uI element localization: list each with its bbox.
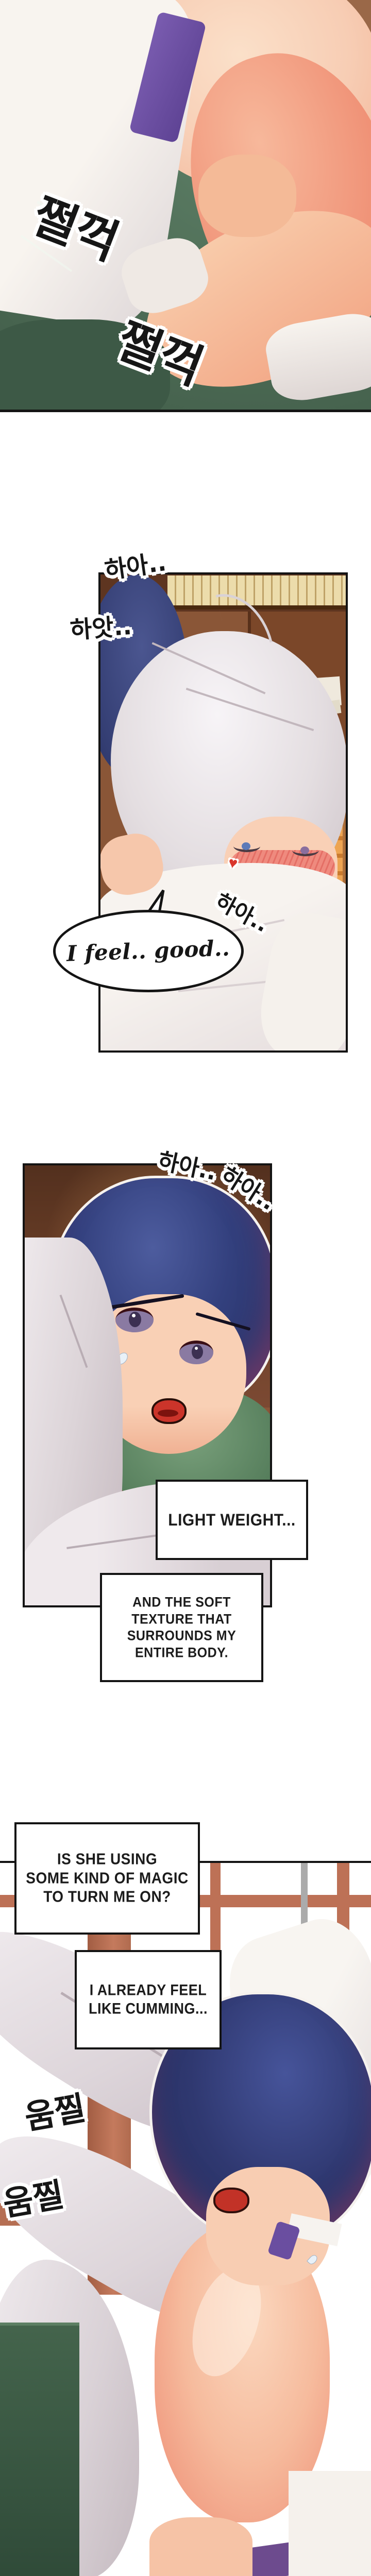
sfx-twitch-1: 움찔 (22, 2092, 88, 2134)
eye-glint (195, 1347, 198, 1350)
caption-magic: IS SHE USING SOME KIND OF MAGIC TO TURN … (14, 1822, 200, 1935)
hand-shape (198, 155, 296, 237)
bubble-feel-text: I feel.. good.. (66, 934, 231, 969)
fabric-shape (289, 2471, 371, 2576)
sfx-haa-2: 하앗.. (70, 614, 133, 642)
caption-light-weight: LIGHT WEIGHT... (156, 1480, 308, 1560)
speech-bubble-feel: I feel.. good.. (53, 910, 244, 992)
boy-mouth-shape (213, 2188, 249, 2213)
boy-mouth-inner (158, 1410, 178, 1417)
caption-light-weight-text: LIGHT WEIGHT... (168, 1509, 296, 1531)
girl-iris-left (242, 842, 250, 850)
eye-glint (132, 1314, 136, 1317)
caption-soft-texture: AND THE SOFT TEXTURE THAT SURROUNDS MY E… (100, 1573, 263, 1682)
caption-cumming: I ALREADY FEEL LIKE CUMMING... (75, 1950, 222, 2049)
girl-iris-right (300, 846, 309, 854)
sfx-twitch-2: 움찔 (1, 2178, 66, 2221)
skin-shape-3 (149, 2517, 252, 2576)
webtoon-page: { "texts": { "bubble_feel": "I feel.. go… (0, 0, 371, 2576)
desk-green-shape (0, 2323, 79, 2576)
book-row-shape (167, 575, 346, 609)
